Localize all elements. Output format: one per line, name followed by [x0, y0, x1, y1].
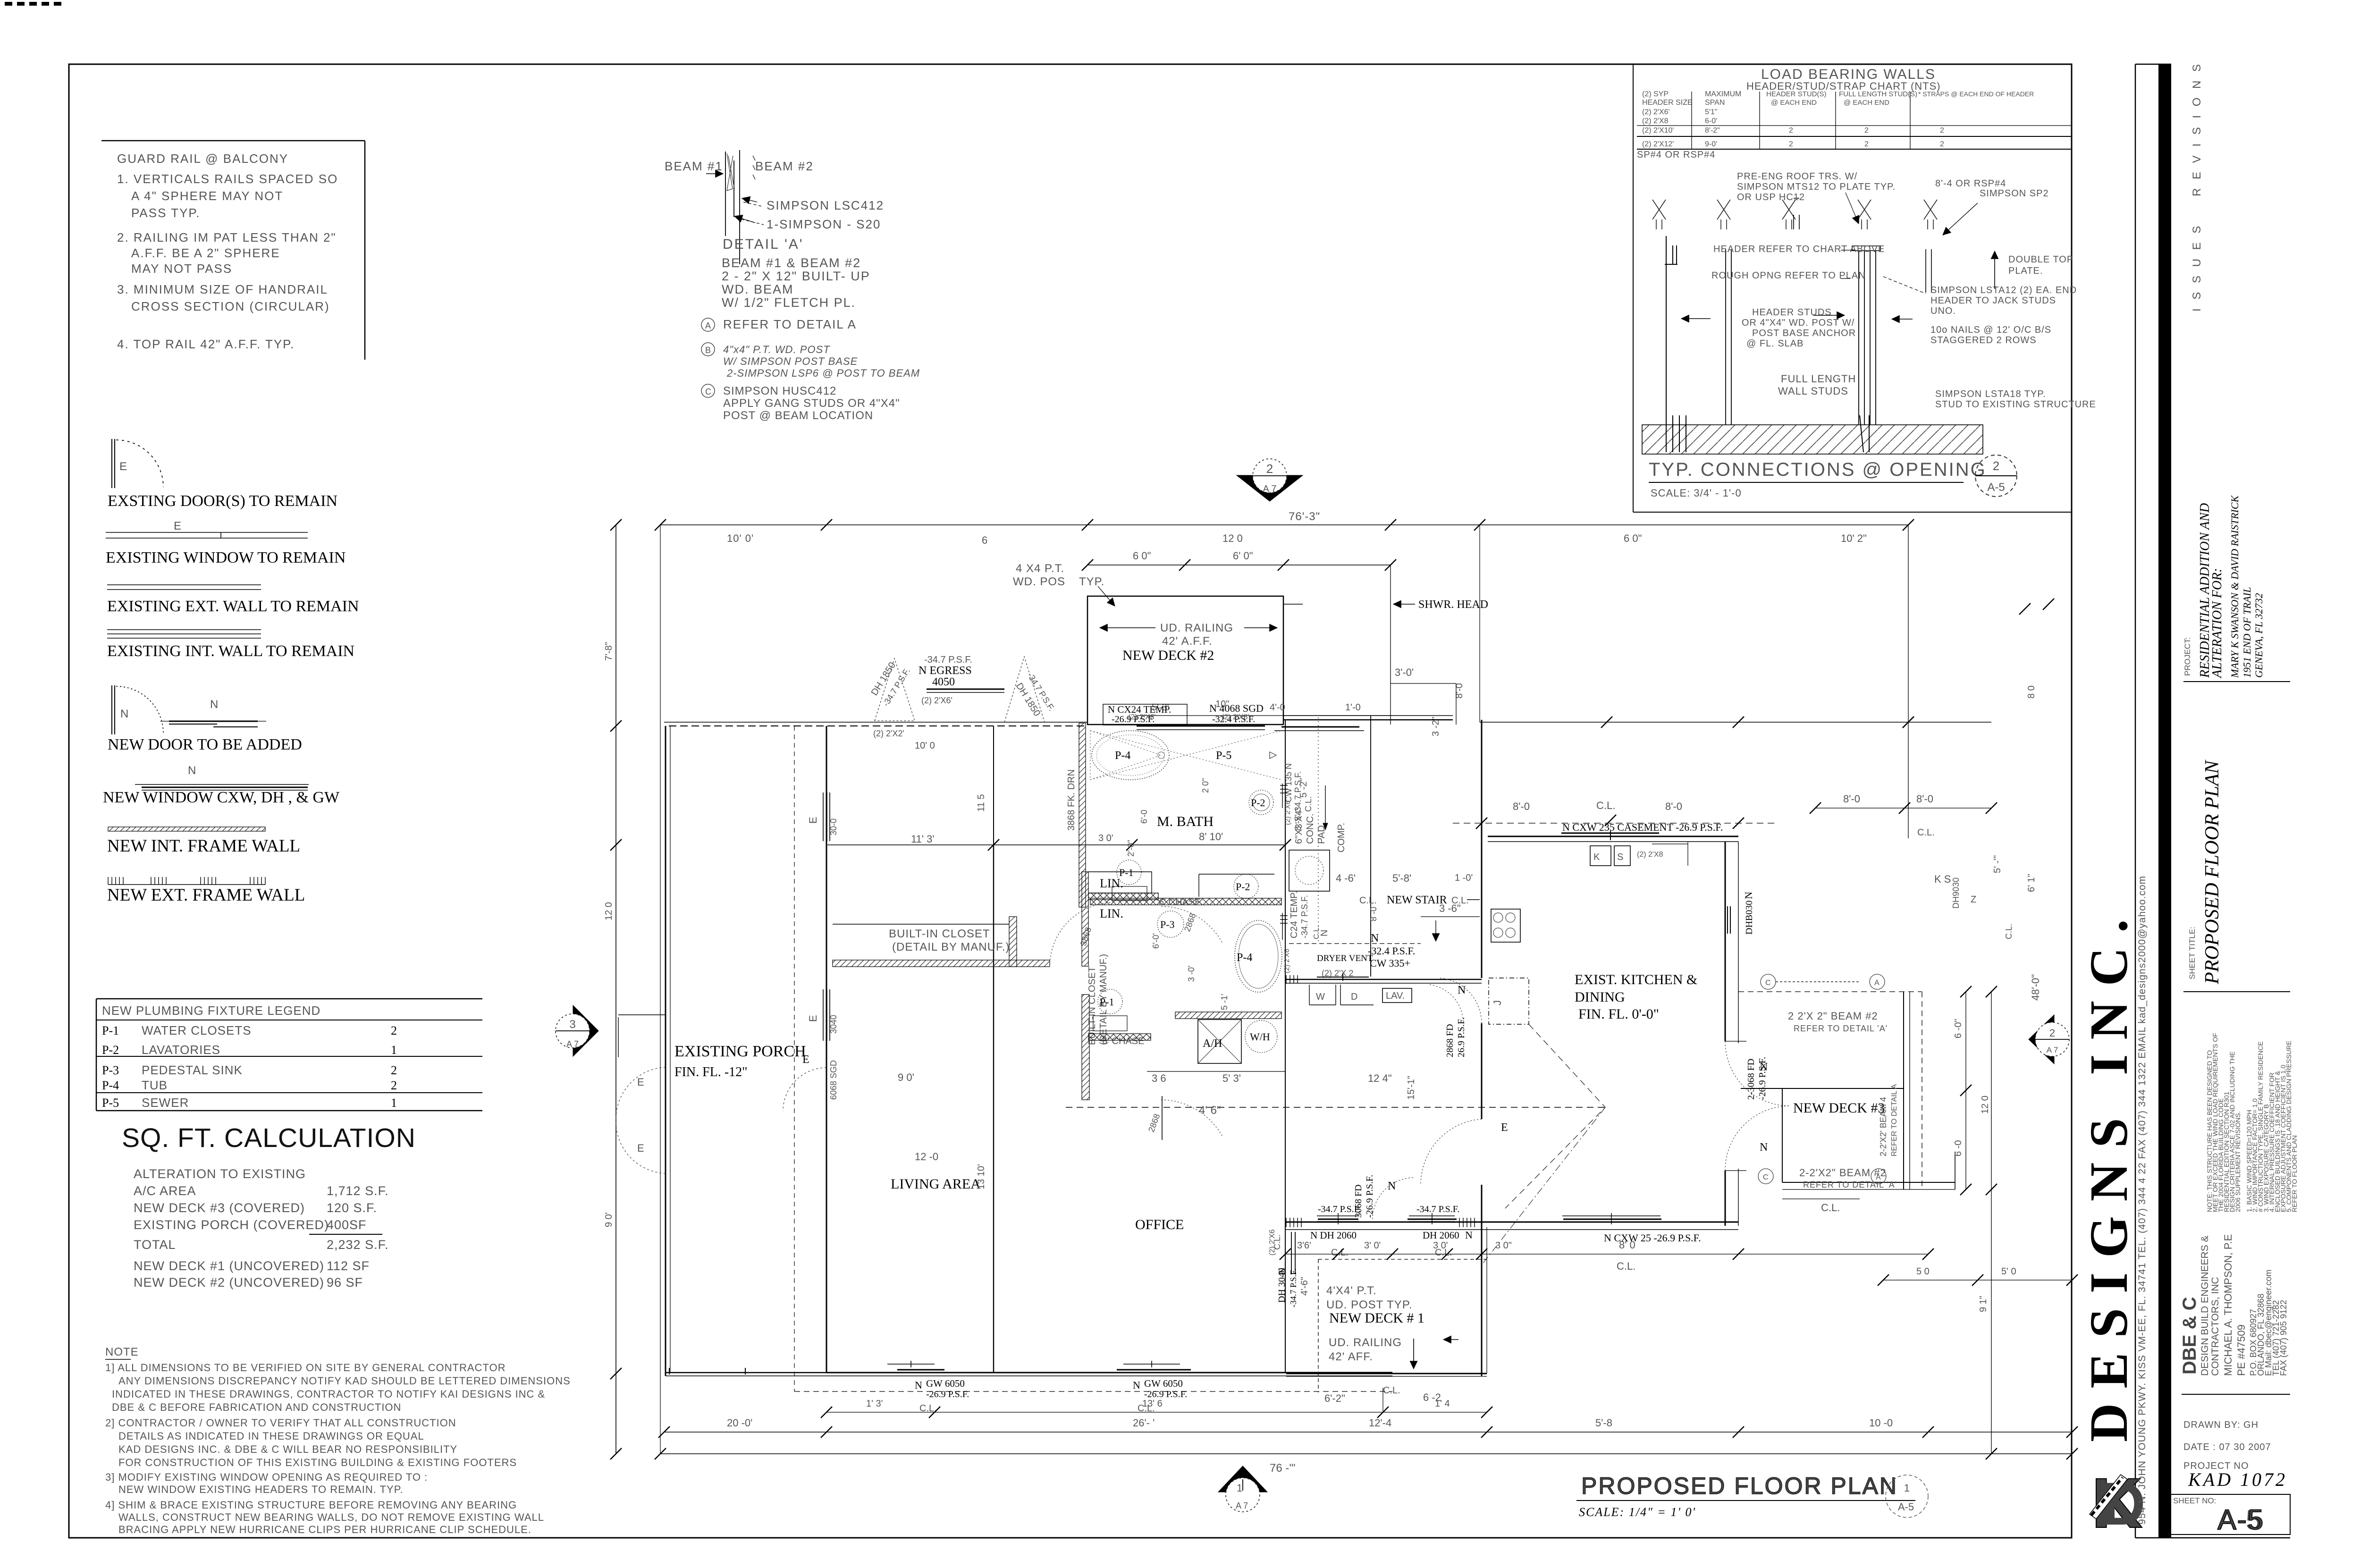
svg-text:N: N — [1371, 932, 1379, 944]
svg-text:HEADER TO JACK STUDS: HEADER TO JACK STUDS — [1930, 295, 2056, 306]
svg-text:1,712 S.F.: 1,712 S.F. — [327, 1184, 389, 1198]
svg-text:2: 2 — [1789, 126, 1793, 135]
svg-text:DBE & C BEFORE FABRICATION AND: DBE & C BEFORE FABRICATION AND CONSTRUCT… — [112, 1401, 401, 1413]
svg-text:NEW DECK #3: NEW DECK #3 — [1793, 1100, 1885, 1116]
svg-text:-26.9 P.S.F.: -26.9 P.S.F. — [926, 1389, 969, 1399]
svg-text:NEW DECK #3 (COVERED): NEW DECK #3 (COVERED) — [134, 1201, 305, 1215]
svg-text:7'-8": 7'-8" — [604, 642, 614, 661]
svg-text:BEAM #1 & BEAM #2: BEAM #1 & BEAM #2 — [722, 256, 861, 270]
svg-text:E: E — [119, 460, 127, 473]
svg-text:TOTAL: TOTAL — [134, 1238, 176, 1252]
svg-text:-26.9 P.S.F.: -26.9 P.S.F. — [1144, 1389, 1187, 1399]
svg-text:K S: K S — [1934, 873, 1951, 885]
svg-text:3 -6": 3 -6" — [1439, 902, 1461, 914]
svg-text:-32.4 P.S.F.: -32.4 P.S.F. — [1368, 945, 1415, 957]
svg-text:3 0": 3 0" — [1495, 1240, 1512, 1251]
svg-text:FIN. FL. -12": FIN. FL. -12" — [674, 1065, 748, 1079]
svg-text:2: 2 — [391, 1079, 397, 1092]
svg-text:P-4: P-4 — [1237, 952, 1252, 964]
svg-text:(2) 2'X12': (2) 2'X12' — [1642, 140, 1674, 148]
svg-text:N DH 2060: N DH 2060 — [1310, 1230, 1357, 1241]
svg-text:ALTERATION TO EXISTING: ALTERATION TO EXISTING — [134, 1167, 306, 1181]
svg-text:E: E — [1501, 1121, 1508, 1134]
svg-text:SP#4 OR RSP#4: SP#4 OR RSP#4 — [1637, 150, 1715, 160]
svg-text:2 0": 2 0" — [1201, 778, 1210, 793]
svg-text:(2) 2'X10': (2) 2'X10' — [1642, 126, 1674, 135]
svg-text:W: W — [1316, 992, 1325, 1002]
svg-text:SHWR. HEAD: SHWR. HEAD — [1418, 599, 1488, 611]
svg-text:Z: Z — [1971, 894, 1976, 905]
svg-text:9 0': 9 0' — [898, 1071, 914, 1083]
svg-text:CONTRACTORS, INC: CONTRACTORS, INC — [2210, 1277, 2221, 1376]
svg-text:4'-0: 4'-0 — [1270, 702, 1285, 713]
svg-text:@ FL. SLAB: @ FL. SLAB — [1746, 338, 1804, 349]
svg-text:DH9030: DH9030 — [1951, 877, 1961, 909]
svg-text:6-0': 6-0' — [1705, 117, 1717, 125]
svg-text:P-1: P-1 — [102, 1024, 119, 1037]
svg-text:SIMPSON SP2: SIMPSON SP2 — [1980, 188, 2049, 199]
svg-text:6 -0: 6 -0 — [1953, 1140, 1964, 1156]
svg-text:C: C — [705, 387, 711, 396]
svg-text:6'-2": 6'-2" — [1324, 1392, 1345, 1404]
svg-text:UD. RAILING: UD. RAILING — [1160, 622, 1233, 634]
svg-text:N: N — [120, 708, 128, 720]
svg-text:76 -'": 76 -'" — [1270, 1462, 1295, 1475]
svg-text:R E V I S I O N S: R E V I S I O N S — [2191, 61, 2203, 196]
svg-text:2: 2 — [2049, 1027, 2055, 1039]
svg-text:STUD TO EXISTING STRUCTURE: STUD TO EXISTING STRUCTURE — [1935, 399, 2096, 410]
svg-text:5 -2": 5 -2" — [1298, 778, 1309, 798]
svg-text:2,232 S.F.: 2,232 S.F. — [327, 1238, 389, 1252]
svg-text:2: 2 — [1940, 126, 1944, 135]
svg-text:2: 2 — [1789, 140, 1793, 148]
svg-text:E: E — [807, 1015, 819, 1022]
svg-text:CW 335+: CW 335+ — [1370, 957, 1410, 969]
svg-text:12 0: 12 0 — [604, 902, 614, 920]
svg-text:TYP.: TYP. — [1079, 575, 1104, 588]
svg-text:(DETAIL BY MANUF.): (DETAIL BY MANUF.) — [892, 941, 1010, 953]
svg-text:NEW PLUMBING FIXTURE LEGEND: NEW PLUMBING FIXTURE LEGEND — [102, 1003, 320, 1018]
svg-text:4 -6': 4 -6' — [1336, 872, 1356, 884]
svg-text:KAD 1072: KAD 1072 — [2188, 1469, 2287, 1490]
svg-text:FOR CONSTRUCTION OF THIS EXIST: FOR CONSTRUCTION OF THIS EXISTING BUILDI… — [118, 1457, 517, 1468]
svg-text:NEW DECK #2 (UNCOVERED): NEW DECK #2 (UNCOVERED) — [134, 1275, 324, 1290]
svg-text:E: E — [637, 1076, 644, 1088]
svg-text:N 4068 SGD: N 4068 SGD — [1209, 702, 1264, 714]
svg-text:E: E — [807, 817, 819, 824]
svg-text:N: N — [210, 698, 218, 711]
svg-text:BUILT-IN CLOSET: BUILT-IN CLOSET — [1087, 967, 1097, 1045]
svg-text:DHB030: DHB030 — [1744, 901, 1754, 935]
svg-text:N: N — [1319, 930, 1330, 936]
svg-text:6' CHASE: 6' CHASE — [1159, 897, 1201, 908]
svg-text:10' 0: 10' 0 — [915, 741, 935, 751]
svg-text:N EGRESS: N EGRESS — [919, 665, 972, 677]
svg-text:NEW EXT. FRAME WALL: NEW EXT. FRAME WALL — [107, 885, 305, 905]
svg-text:8'-2": 8'-2" — [1705, 126, 1720, 135]
svg-text:5'-8: 5'-8 — [1595, 1417, 1612, 1429]
svg-text:2-2'X2" BEAM #2: 2-2'X2" BEAM #2 — [1799, 1167, 1887, 1179]
svg-text:OFFICE: OFFICE — [1135, 1217, 1184, 1232]
svg-text:ANY DIMENSIONS DISCREPANCY NOT: ANY DIMENSIONS DISCREPANCY NOTIFY KAD SH… — [118, 1375, 571, 1387]
svg-text:J: J — [1492, 1000, 1503, 1005]
svg-text:REFER TO DETAIL A: REFER TO DETAIL A — [1890, 1084, 1898, 1156]
svg-text:MARY K SWANSON & DAVID RAISTRI: MARY K SWANSON & DAVID RAISTRICK — [2229, 495, 2241, 678]
svg-text:(2) 2'X6: (2) 2'X6 — [1268, 1229, 1276, 1256]
svg-text:8'-0: 8'-0 — [1454, 683, 1465, 699]
svg-text:W/ 1/2" FLETCH PL.: W/ 1/2" FLETCH PL. — [722, 295, 856, 310]
svg-text:M. BATH: M. BATH — [1157, 814, 1214, 829]
svg-text:A-5: A-5 — [2217, 1504, 2264, 1535]
svg-text:8' 0: 8' 0 — [1619, 1239, 1635, 1251]
svg-text:LIVING AREA: LIVING AREA — [891, 1176, 981, 1192]
svg-text:OR USP HC12: OR USP HC12 — [1737, 192, 1805, 202]
svg-text:BRACING APPLY NEW HURRICANE CL: BRACING APPLY NEW HURRICANE CLIPS PER HU… — [118, 1524, 531, 1535]
svg-text:-34.7 P.S.F.: -34.7 P.S.F. — [1300, 895, 1309, 938]
svg-text:2: 2 — [1266, 462, 1273, 476]
svg-text:954 N. JOHN YOUNG PKWY. KIS: 954 N. JOHN YOUNG PKWY. KISS VM-EE, FL. … — [2137, 876, 2148, 1525]
svg-text:FULL LENGTH: FULL LENGTH — [1781, 373, 1856, 385]
svg-text:C.L.: C.L. — [1596, 800, 1615, 811]
svg-text:N: N — [188, 764, 196, 777]
svg-text:EXISTING EXT. WALL TO REMAIN: EXISTING EXT. WALL TO REMAIN — [107, 598, 359, 615]
svg-text:C.L.: C.L. — [2004, 924, 2014, 939]
svg-text:N: N — [1760, 1141, 1768, 1154]
svg-text:5' 3': 5' 3' — [1222, 1072, 1241, 1084]
svg-text:(2) 2'X8: (2) 2'X8 — [1637, 851, 1663, 859]
svg-text:WD. BEAM: WD. BEAM — [722, 282, 794, 296]
svg-text:112 SF: 112 SF — [327, 1259, 370, 1273]
svg-text:6 0": 6 0" — [1624, 532, 1642, 544]
svg-text:3 0': 3 0' — [1098, 833, 1113, 843]
svg-text:EXISTING PORCH: EXISTING PORCH — [674, 1043, 806, 1060]
svg-text:W/H: W/H — [1250, 1031, 1270, 1043]
svg-text:1: 1 — [391, 1043, 397, 1057]
svg-text:3'-0': 3'-0' — [1395, 666, 1414, 678]
svg-text:HEADER SIZE: HEADER SIZE — [1642, 99, 1693, 107]
svg-text:4' 6": 4' 6" — [1199, 1104, 1221, 1117]
svg-text:12 -0: 12 -0 — [915, 1151, 938, 1163]
svg-text:EXISTING PORCH (COVERED): EXISTING PORCH (COVERED) — [134, 1218, 329, 1232]
svg-text:6: 6 — [982, 534, 987, 546]
svg-text:LAVATORIES: LAVATORIES — [142, 1043, 220, 1057]
svg-text:N: N — [1743, 892, 1754, 899]
svg-text:A.F.F. BE A 2" SPHERE: A.F.F. BE A 2" SPHERE — [131, 246, 280, 260]
svg-text:3 0': 3 0' — [1433, 1240, 1448, 1251]
svg-text:C.L.: C.L. — [1359, 895, 1377, 906]
svg-text:DRAWN BY: GH: DRAWN BY: GH — [2183, 1420, 2259, 1430]
svg-text:2: 2 — [1864, 126, 1869, 135]
svg-text:NEW INT. FRAME WALL: NEW INT. FRAME WALL — [107, 836, 300, 856]
svg-text:42' AFF.: 42' AFF. — [1329, 1350, 1373, 1363]
svg-text:SCALE: 1/4" = 1' 0': SCALE: 1/4" = 1' 0' — [1579, 1505, 1696, 1519]
svg-text:PE #47509: PE #47509 — [2235, 1324, 2247, 1376]
svg-text:4050: 4050 — [932, 676, 955, 688]
svg-text:C.L.: C.L. — [1617, 1260, 1635, 1272]
svg-text:K: K — [1593, 852, 1600, 862]
svg-text:CROSS SECTION (CIRCULAR): CROSS SECTION (CIRCULAR) — [131, 299, 330, 313]
svg-text:6 -0": 6 -0" — [1953, 1019, 1964, 1038]
svg-text:2: 2 — [391, 1063, 397, 1077]
svg-text:UD. RAILING: UD. RAILING — [1329, 1336, 1402, 1349]
svg-text:13' 6: 13' 6 — [1142, 1399, 1163, 1409]
svg-text:LIN.: LIN. — [1100, 877, 1123, 890]
svg-text:A-5: A-5 — [1987, 481, 2005, 494]
svg-text:C.L.: C.L. — [1304, 796, 1313, 812]
svg-text:12 0: 12 0 — [1980, 1096, 1990, 1114]
svg-text:6' 0": 6' 0" — [1233, 550, 1253, 562]
svg-text:SEWER: SEWER — [142, 1096, 189, 1110]
svg-text:PASS TYP.: PASS TYP. — [131, 206, 201, 220]
svg-text:FIN. FL. 0'-0": FIN. FL. 0'-0" — [1578, 1006, 1659, 1022]
svg-text:SIMPSON LSTA12 (2) EA. END: SIMPSON LSTA12 (2) EA. END — [1930, 285, 2077, 295]
svg-text:CONC.: CONC. — [1305, 814, 1315, 844]
svg-text:DBE & C: DBE & C — [2179, 1297, 2200, 1374]
svg-text:2] CONTRACTOR / OWNER TO VERIF: 2] CONTRACTOR / OWNER TO VERIFY THAT ALL… — [105, 1417, 456, 1429]
svg-text:E: E — [802, 1054, 809, 1066]
svg-text:10o NAILS @ 12' O/C B/S: 10o NAILS @ 12' O/C B/S — [1930, 325, 2051, 335]
svg-text:SHEET NO:: SHEET NO: — [2173, 1496, 2216, 1505]
svg-text:NEW WINDOW CXW, DH , & GW: NEW WINDOW CXW, DH , & GW — [103, 789, 340, 806]
svg-text:9 1": 9 1" — [1978, 1296, 1989, 1312]
svg-text:12 0: 12 0 — [1222, 532, 1243, 544]
svg-text:E: E — [637, 1142, 644, 1154]
svg-text:2-SIMPSON LSP6 @ POST TO BEAM: 2-SIMPSON LSP6 @ POST TO BEAM — [726, 367, 920, 379]
svg-text:DOUBLE TOP: DOUBLE TOP — [2008, 254, 2073, 265]
svg-text:SIMPSON LSC412: SIMPSON LSC412 — [767, 198, 884, 212]
svg-text:6 0": 6 0" — [1133, 550, 1151, 562]
svg-text:3'6': 3'6' — [1297, 1240, 1311, 1251]
svg-text:P-2: P-2 — [1236, 881, 1250, 893]
svg-text:P-3: P-3 — [1160, 919, 1175, 930]
svg-text:C.L.: C.L. — [1383, 1385, 1400, 1396]
svg-text:EXISTING INT. WALL TO REMAIN: EXISTING INT. WALL TO REMAIN — [107, 642, 354, 660]
svg-text:SCALE: 3/4' - 1'-0: SCALE: 3/4' - 1'-0 — [1651, 487, 1742, 499]
svg-text:P-5: P-5 — [102, 1096, 119, 1110]
svg-text:2868 FD: 2868 FD — [1445, 1024, 1455, 1057]
svg-text:TYP. CONNECTIONS @ OPENING: TYP. CONNECTIONS @ OPENING — [1649, 459, 1987, 480]
svg-text:DINING: DINING — [1575, 989, 1625, 1005]
svg-text:WALL STUDS: WALL STUDS — [1778, 385, 1848, 397]
svg-text:2868: 2868 — [1182, 912, 1197, 933]
svg-text:LAV.: LAV. — [1386, 991, 1405, 1001]
svg-text:NOTE: NOTE — [105, 1346, 139, 1358]
svg-text:A/C AREA: A/C AREA — [134, 1184, 196, 1198]
svg-text:2: 2 — [1993, 459, 1999, 473]
svg-text:FAX (407) 905 9122: FAX (407) 905 9122 — [2279, 1300, 2288, 1376]
svg-text:BEAM #1: BEAM #1 — [665, 159, 723, 173]
svg-text:SHEET TITLE:: SHEET TITLE: — [2188, 927, 2197, 979]
svg-text:(2) 2'X2': (2) 2'X2' — [873, 729, 904, 738]
svg-text:C.L.: C.L. — [1917, 827, 1935, 838]
svg-text:12'-4: 12'-4 — [1369, 1417, 1391, 1429]
svg-text:A 7: A 7 — [2047, 1045, 2058, 1054]
svg-text:EXSTING DOOR(S) TO REMAIN: EXSTING DOOR(S) TO REMAIN — [108, 492, 337, 510]
svg-text:A 7: A 7 — [1236, 1501, 1248, 1510]
svg-text:P-3: P-3 — [102, 1063, 119, 1077]
svg-text:42' A.F.F.: 42' A.F.F. — [1162, 635, 1213, 648]
svg-text:(2) 2'X8': (2) 2'X8' — [1128, 713, 1156, 721]
svg-text:1951 END OF TRAIL: 1951 END OF TRAIL — [2241, 587, 2253, 678]
svg-text:2006 SUPPLEMENT REVISIONS.: 2006 SUPPLEMENT REVISIONS. — [2234, 1111, 2242, 1212]
svg-text:8'-0: 8'-0 — [1916, 793, 1933, 805]
svg-text:C: C — [1763, 1173, 1769, 1181]
svg-text:BUILT-IN CLOSET: BUILT-IN CLOSET — [889, 927, 990, 940]
svg-text:REFER TO DETAIL A: REFER TO DETAIL A — [723, 317, 857, 331]
svg-text:APPLY GANG STUDS OR 4"X4": APPLY GANG STUDS OR 4"X4" — [723, 397, 900, 410]
svg-text:KAD DESIGNS INC. & DBE & C WI: KAD DESIGNS INC. & DBE & C WILL BEAR NO … — [118, 1443, 457, 1455]
svg-text:EXIST. KITCHEN &: EXIST. KITCHEN & — [1575, 972, 1697, 987]
svg-text:GENEVA, FL 32732: GENEVA, FL 32732 — [2253, 593, 2265, 678]
svg-text:3' 0': 3' 0' — [1364, 1240, 1381, 1251]
svg-text:TUB: TUB — [142, 1078, 168, 1092]
svg-text:NEW WINDOW EXISTING HEADERS TO: NEW WINDOW EXISTING HEADERS TO REMAIN. T… — [118, 1484, 404, 1495]
svg-text:5' -'": 5' -'" — [1992, 855, 2003, 873]
svg-text:PRE-ENG ROOF TRS. W/: PRE-ENG ROOF TRS. W/ — [1737, 171, 1857, 182]
svg-text:DH 3040: DH 3040 — [1277, 1268, 1287, 1303]
svg-text:SQ. FT. CALCULATION: SQ. FT. CALCULATION — [122, 1123, 416, 1153]
svg-text:(2) 2'X8: (2) 2'X8 — [1642, 117, 1669, 125]
svg-text:DETAILS AS INDICATED IN THESE: DETAILS AS INDICATED IN THESE DRAWINGS O… — [118, 1430, 424, 1442]
svg-text:2'-0": 2'-0" — [1126, 840, 1136, 857]
svg-text:BEAM #2: BEAM #2 — [755, 159, 814, 173]
svg-text:4] SHIM & BRACE EXISTING STRUC: 4] SHIM & BRACE EXISTING STRUCTURE BEFOR… — [105, 1499, 517, 1511]
svg-text:4. TOP RAIL 42" A.F.F. TYP.: 4. TOP RAIL 42" A.F.F. TYP. — [117, 337, 295, 351]
svg-text:UNO.: UNO. — [1930, 306, 1956, 316]
svg-text:GUARD RAIL @ BALCONY: GUARD RAIL @ BALCONY — [117, 152, 288, 166]
svg-text:UD. POST TYP.: UD. POST TYP. — [1326, 1298, 1412, 1311]
svg-text:C24 TEMP.: C24 TEMP. — [1289, 891, 1299, 938]
svg-text:HEADER REFER TO CHART ABOVE: HEADER REFER TO CHART ABOVE — [1713, 244, 1885, 254]
svg-text:SIMPSON LSTA18 TYP.: SIMPSON LSTA18 TYP. — [1935, 389, 2046, 399]
svg-text:48'-0": 48'-0" — [2030, 974, 2041, 1001]
svg-text:SPAN: SPAN — [1705, 99, 1725, 107]
svg-text:6068 SGD: 6068 SGD — [829, 1060, 838, 1100]
svg-text:3068 FD: 3068 FD — [1353, 1184, 1364, 1218]
svg-text:8'-0: 8'-0 — [1843, 793, 1860, 805]
svg-text:2: 2 — [1864, 140, 1869, 148]
svg-text:6'-0: 6'-0 — [1139, 810, 1149, 824]
svg-text:-34.7 P.S.F.: -34.7 P.S.F. — [924, 655, 972, 665]
svg-text:B: B — [705, 346, 711, 355]
svg-text:3: 3 — [569, 1018, 575, 1031]
svg-text:2: 2 — [1940, 140, 1944, 148]
svg-text:@ EACH END: @ EACH END — [1771, 99, 1817, 107]
svg-text:PROPOSED FLOOR PLAN: PROPOSED FLOOR PLAN — [2201, 759, 2223, 985]
svg-text:26'- ': 26'- ' — [1133, 1417, 1155, 1429]
svg-text:400SF: 400SF — [327, 1218, 367, 1232]
svg-text:A: A — [705, 321, 711, 330]
svg-text:PROPOSED FLOOR PLAN: PROPOSED FLOOR PLAN — [1581, 1473, 1898, 1499]
svg-text:3868: 3868 — [1079, 926, 1093, 947]
svg-text:15'-1": 15'-1" — [1406, 1076, 1416, 1100]
svg-text:11 5: 11 5 — [976, 794, 986, 812]
svg-text:2 2'X 2" BEAM #2: 2 2'X 2" BEAM #2 — [1788, 1010, 1878, 1022]
svg-text:GW 6050: GW 6050 — [926, 1378, 965, 1389]
svg-text:N: N — [915, 1379, 922, 1391]
svg-text:30-0: 30-0 — [829, 818, 838, 835]
svg-text:DRYER VENT: DRYER VENT — [1317, 953, 1373, 963]
svg-text:2 - 2" X 12" BUILT- UP: 2 - 2" X 12" BUILT- UP — [722, 269, 870, 283]
svg-text:A-5: A-5 — [1898, 1501, 1914, 1513]
svg-text:P-2: P-2 — [1251, 797, 1265, 809]
svg-text:DESIGNS INC.: DESIGNS INC. — [2079, 904, 2139, 1442]
svg-text:REFER TO DETAIL 'A': REFER TO DETAIL 'A' — [1803, 1180, 1897, 1189]
svg-text:8' 10': 8' 10' — [1199, 831, 1223, 843]
svg-text:12 4": 12 4" — [1368, 1072, 1392, 1084]
svg-text:HEADER STUD(S): HEADER STUD(S) — [1766, 90, 1827, 98]
svg-text:* STRAPS @ EACH END OF HEADER: * STRAPS @ EACH END OF HEADER — [1918, 90, 2034, 98]
svg-text:1: 1 — [1904, 1482, 1910, 1494]
svg-text:26.9 P.S.F.: 26.9 P.S.F. — [1456, 1017, 1467, 1057]
svg-text:REFER TO FLOOR PLAN: REFER TO FLOOR PLAN — [2291, 1135, 2298, 1212]
svg-text:1-SIMPSON - S20: 1-SIMPSON - S20 — [767, 217, 881, 231]
svg-text:11' 3': 11' 3' — [911, 833, 935, 845]
svg-text:4'-6": 4'-6" — [1299, 1277, 1310, 1296]
svg-text:D: D — [1351, 992, 1357, 1002]
svg-text:96 SF: 96 SF — [327, 1275, 363, 1290]
svg-text:NEW DECK #1 (UNCOVERED): NEW DECK #1 (UNCOVERED) — [134, 1259, 324, 1273]
svg-text:P-1: P-1 — [1100, 996, 1114, 1008]
svg-text:N: N — [1133, 1379, 1140, 1391]
svg-text:GW 6050: GW 6050 — [1144, 1378, 1183, 1389]
svg-text:1: 1 — [391, 1096, 397, 1110]
svg-text:4 X4 P.T.: 4 X4 P.T. — [1016, 562, 1064, 575]
svg-text:8'-0: 8'-0 — [1513, 801, 1530, 812]
svg-text:10' 0': 10' 0' — [727, 532, 754, 544]
svg-text:P-5: P-5 — [1216, 750, 1231, 762]
svg-text:1: 1 — [1237, 1482, 1242, 1494]
svg-text:3040: 3040 — [829, 1015, 838, 1034]
svg-text:SIMPSON HUSC412: SIMPSON HUSC412 — [723, 385, 836, 397]
svg-text:MICHAEL A. THOMPSON, P.E: MICHAEL A. THOMPSON, P.E — [2222, 1234, 2234, 1376]
svg-text:4'X4' P.T.: 4'X4' P.T. — [1326, 1284, 1377, 1297]
svg-text:8'-0: 8'-0 — [1665, 801, 1682, 812]
svg-text:A 7: A 7 — [566, 1039, 579, 1049]
svg-text:INDICATED IN THESE DRAWINGS, C: INDICATED IN THESE DRAWINGS, CONTRACTOR … — [112, 1388, 545, 1400]
svg-text:A 4" SPHERE MAY NOT: A 4" SPHERE MAY NOT — [131, 189, 283, 203]
svg-text:DESIGN BUILD ENGINEERS &: DESIGN BUILD ENGINEERS & — [2200, 1235, 2210, 1376]
svg-text:DH 2060: DH 2060 — [1423, 1230, 1459, 1241]
svg-text:-34.7 P.S.F.: -34.7 P.S.F. — [1289, 1269, 1298, 1307]
svg-text:120 S.F.: 120 S.F. — [327, 1201, 377, 1215]
svg-text:5 0: 5 0 — [1916, 1266, 1930, 1277]
svg-text:COMP.: COMP. — [1336, 823, 1347, 852]
svg-text:C: C — [1765, 979, 1771, 987]
svg-text:PROJECT:: PROJECT: — [2183, 637, 2192, 676]
svg-text:@ EACH END: @ EACH END — [1844, 99, 1889, 107]
svg-text:NEW DECK # 1: NEW DECK # 1 — [1329, 1310, 1424, 1326]
svg-text:LIN.: LIN. — [1100, 907, 1123, 920]
svg-text:NEW DOOR TO BE ADDED: NEW DOOR TO BE ADDED — [108, 736, 302, 753]
svg-text:W/ SIMPSON POST BASE: W/ SIMPSON POST BASE — [723, 355, 858, 367]
svg-text:5' 0: 5' 0 — [2001, 1266, 2016, 1277]
svg-text:MAY NOT PASS: MAY NOT PASS — [131, 261, 232, 276]
svg-text:10' 2": 10' 2" — [1841, 532, 1867, 544]
svg-text:PLATE.: PLATE. — [2008, 266, 2043, 276]
svg-text:1] ALL DIMENSIONS TO BE VERIFI: 1] ALL DIMENSIONS TO BE VERIFIED ON SITE… — [105, 1362, 506, 1374]
svg-text:9-0': 9-0' — [1705, 140, 1717, 148]
svg-text:(2) 2'X6': (2) 2'X6' — [1642, 108, 1670, 116]
svg-text:10 -0: 10 -0 — [1869, 1417, 1893, 1429]
svg-text:8 0: 8 0 — [2026, 685, 2037, 699]
svg-text:STAGGERED 2 ROWS: STAGGERED 2 ROWS — [1930, 335, 2037, 346]
svg-text:13 10': 13 10' — [976, 1164, 986, 1189]
svg-text:2868: 2868 — [1146, 1113, 1162, 1133]
svg-text:4"x4" P.T. WD. POST: 4"x4" P.T. WD. POST — [723, 344, 830, 355]
svg-text:N: N — [1465, 1229, 1473, 1241]
svg-text:FULL LENGTH STUD(S): FULL LENGTH STUD(S) — [1839, 90, 1917, 98]
